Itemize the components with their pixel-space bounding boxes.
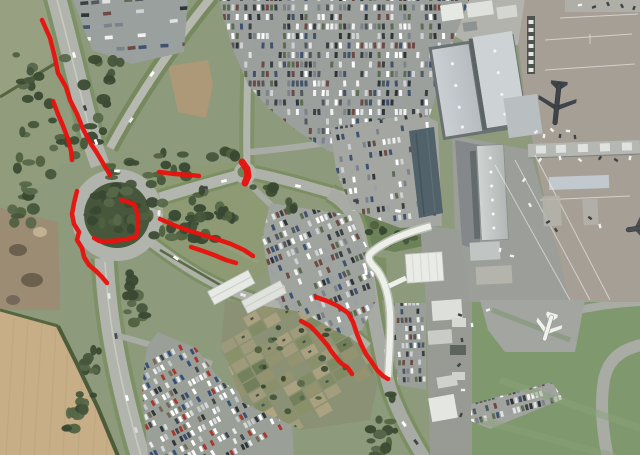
parked-car: [392, 138, 395, 144]
terminal-pier: [470, 144, 509, 241]
parked-car: [382, 61, 385, 67]
dirt-mound: [9, 244, 27, 256]
parked-car: [244, 71, 247, 77]
parked-car: [244, 23, 247, 29]
parked-car: [418, 360, 421, 365]
parked-car: [257, 14, 260, 20]
parked-car: [399, 90, 402, 96]
parked-car: [425, 14, 428, 20]
parked-car: [399, 4, 402, 10]
parked-car: [347, 109, 350, 115]
parked-car: [274, 4, 277, 10]
parked-car: [360, 99, 363, 105]
parked-car: [180, 6, 188, 10]
parked-car: [390, 71, 393, 77]
tree: [76, 391, 84, 398]
tree: [194, 212, 206, 223]
parked-car: [304, 4, 307, 10]
parked-car: [249, 23, 252, 29]
parked-car: [403, 52, 406, 58]
south-building: [428, 329, 453, 345]
parked-car: [248, 42, 251, 48]
parked-car: [313, 61, 316, 67]
parked-car: [261, 61, 264, 67]
parked-car: [347, 52, 350, 58]
tree: [318, 355, 326, 362]
parked-car: [403, 23, 406, 29]
tree: [165, 233, 179, 241]
parked-car: [408, 23, 411, 29]
parked-car: [365, 90, 368, 96]
tree: [366, 438, 375, 443]
parked-car: [429, 14, 432, 20]
parked-car: [369, 4, 372, 10]
parked-car: [386, 52, 389, 58]
tree: [99, 127, 107, 135]
parked-car: [365, 99, 368, 105]
parked-car: [386, 90, 389, 96]
parked-car: [395, 90, 398, 96]
parked-car: [352, 177, 355, 183]
parked-car: [399, 14, 402, 20]
parked-car: [347, 42, 350, 48]
parked-car: [231, 0, 234, 1]
parked-car: [339, 99, 342, 105]
parked-car: [261, 71, 264, 77]
parked-car: [300, 90, 303, 96]
parked-car: [339, 14, 342, 20]
parked-car: [248, 14, 251, 20]
tree: [125, 160, 136, 166]
parked-car: [309, 61, 312, 67]
parked-car: [378, 33, 381, 39]
tree: [375, 415, 382, 423]
parked-car: [401, 326, 404, 331]
parked-car: [373, 0, 376, 1]
dirt-mound: [21, 273, 43, 287]
parked-car: [283, 61, 286, 67]
parked-car: [352, 118, 355, 124]
parked-car: [409, 343, 412, 348]
tree: [365, 229, 373, 235]
parked-car: [287, 14, 290, 20]
parked-car: [408, 14, 411, 20]
parked-car: [403, 80, 406, 86]
parked-car: [390, 4, 393, 10]
parked-car: [236, 14, 239, 20]
top-right-road: [565, 0, 640, 12]
parked-car: [322, 14, 325, 20]
tree: [216, 212, 223, 220]
parked-car: [369, 23, 372, 29]
parked-car: [287, 80, 290, 86]
parked-car: [379, 151, 382, 157]
parked-car: [382, 80, 385, 86]
tree: [230, 150, 240, 161]
parked-car: [406, 368, 409, 373]
parked-car: [405, 326, 408, 331]
parked-car: [382, 23, 385, 29]
parked-car: [407, 377, 410, 382]
parked-car: [405, 334, 408, 339]
tree: [26, 217, 37, 228]
parked-car: [287, 4, 290, 10]
tree: [267, 182, 279, 192]
parked-car: [421, 99, 424, 105]
parked-car: [386, 80, 389, 86]
parked-car: [416, 0, 419, 1]
pier-south-block: [470, 241, 501, 261]
parked-car: [343, 23, 346, 29]
car-park-east-of-spine-road: [392, 300, 426, 390]
parked-car: [395, 159, 398, 165]
tree: [36, 156, 46, 167]
tree: [169, 210, 182, 221]
parked-car: [392, 171, 395, 177]
parked-car: [374, 185, 377, 191]
parked-car: [292, 52, 295, 58]
parked-car: [369, 109, 372, 115]
tree: [48, 118, 57, 124]
parked-car: [231, 23, 234, 29]
parked-car: [395, 52, 398, 58]
parked-car: [283, 0, 286, 1]
parked-car: [365, 4, 368, 10]
parked-car: [279, 52, 282, 58]
parked-car: [253, 80, 256, 86]
parked-car: [417, 334, 420, 339]
parked-car: [399, 109, 402, 115]
tree: [284, 408, 291, 414]
parked-car: [304, 71, 307, 77]
parked-car: [421, 325, 424, 330]
parked-car: [364, 52, 367, 58]
parked-car: [433, 23, 436, 29]
parked-car: [261, 42, 264, 48]
parked-car: [420, 308, 423, 313]
parked-car: [378, 61, 381, 67]
parked-car: [296, 52, 299, 58]
parked-car: [326, 137, 329, 143]
parked-car: [416, 309, 419, 314]
tree: [136, 303, 147, 313]
parked-car: [408, 90, 411, 96]
parked-car: [410, 351, 413, 356]
parked-car: [279, 33, 282, 39]
tree: [92, 206, 101, 214]
parked-car: [417, 317, 420, 322]
parked-car: [410, 368, 413, 373]
parked-car: [425, 61, 428, 67]
parked-car: [117, 47, 125, 51]
parked-car: [317, 71, 320, 77]
parked-car: [409, 326, 412, 331]
parked-car: [421, 33, 424, 39]
road-vehicle: [157, 210, 160, 216]
parked-car: [399, 42, 402, 48]
parked-car: [343, 71, 346, 77]
parked-car: [138, 45, 146, 49]
parked-car: [425, 122, 428, 128]
parked-car: [369, 0, 372, 1]
parked-car: [377, 71, 380, 77]
parked-car: [403, 214, 406, 220]
parked-car: [304, 14, 307, 20]
tree: [107, 55, 118, 67]
tree: [380, 442, 391, 454]
parked-car: [429, 71, 432, 77]
parked-car: [425, 4, 428, 10]
parked-car: [395, 71, 398, 77]
parked-car: [326, 42, 329, 48]
parked-car: [414, 343, 417, 348]
tree: [315, 396, 321, 399]
parked-car: [330, 0, 333, 1]
parked-car: [403, 377, 406, 382]
tree: [61, 425, 72, 432]
parked-car: [317, 128, 320, 134]
tree: [289, 204, 297, 214]
parked-car: [421, 4, 424, 10]
parked-car: [429, 33, 432, 39]
parked-car: [395, 80, 398, 86]
parked-car: [257, 4, 260, 10]
parked-car: [300, 71, 303, 77]
parked-car: [373, 23, 376, 29]
parked-car: [304, 52, 307, 58]
parked-car: [419, 377, 422, 382]
tree: [90, 345, 97, 355]
tree: [379, 227, 387, 234]
tree: [153, 153, 163, 158]
tree: [104, 198, 115, 207]
tree: [206, 152, 219, 162]
parked-car: [300, 33, 303, 39]
parked-car: [360, 71, 363, 77]
small-building: [452, 318, 466, 327]
parked-car: [403, 14, 406, 20]
parked-car: [309, 128, 312, 134]
parked-car: [160, 44, 168, 48]
parked-car: [398, 352, 401, 357]
parked-car: [223, 0, 226, 1]
parked-car: [283, 4, 286, 10]
parked-car: [382, 4, 385, 10]
parked-car: [409, 317, 412, 322]
parked-car: [398, 360, 401, 365]
parked-car: [377, 52, 380, 58]
tree: [374, 430, 386, 439]
parked-car: [422, 351, 425, 356]
stand-pad: [582, 199, 598, 226]
parked-car: [227, 14, 230, 20]
parked-car: [266, 99, 269, 105]
parked-car: [343, 118, 346, 124]
parked-car: [365, 197, 368, 203]
parked-car: [352, 61, 355, 67]
tree: [263, 365, 267, 370]
parked-car: [421, 61, 424, 67]
parked-car: [390, 61, 393, 67]
parked-car: [406, 351, 409, 356]
parked-car: [244, 4, 247, 10]
parked-car: [423, 376, 426, 381]
parked-car: [253, 0, 256, 1]
parked-car: [304, 0, 307, 1]
parked-car: [386, 14, 389, 20]
pale-roof-band: [549, 175, 609, 190]
parked-car: [446, 0, 449, 1]
parked-car: [266, 4, 269, 10]
parked-car: [339, 71, 342, 77]
parked-car: [270, 90, 273, 96]
parked-car: [249, 33, 252, 39]
parked-car: [408, 33, 411, 39]
parked-car: [347, 90, 350, 96]
parked-car: [403, 4, 406, 10]
parked-car: [399, 377, 402, 382]
parked-car: [425, 0, 428, 1]
parked-car: [339, 4, 342, 10]
parked-car: [339, 0, 342, 1]
parked-car: [326, 128, 329, 134]
parked-car: [377, 80, 380, 86]
parked-car: [287, 0, 290, 1]
parked-car: [80, 1, 88, 5]
parked-car: [270, 61, 273, 67]
tree: [13, 163, 22, 174]
tree: [59, 54, 71, 62]
parked-car: [296, 80, 299, 86]
parked-car: [386, 71, 389, 77]
parked-car: [360, 109, 363, 115]
parked-car: [356, 42, 359, 48]
parked-car: [378, 42, 381, 48]
parked-car: [373, 42, 376, 48]
parked-car: [287, 33, 290, 39]
parked-car: [261, 0, 264, 1]
parked-car: [397, 335, 400, 340]
parked-car: [425, 109, 428, 115]
tree: [22, 159, 35, 166]
parked-car: [399, 33, 402, 39]
parked-car: [231, 33, 234, 39]
parked-car: [300, 61, 303, 67]
parked-car: [403, 71, 406, 77]
parked-car: [326, 99, 329, 105]
parked-car: [300, 52, 303, 58]
tree: [78, 404, 88, 415]
parked-car: [335, 14, 338, 20]
parked-car: [317, 4, 320, 10]
parked-car: [356, 90, 359, 96]
tree: [370, 221, 379, 230]
parked-car: [257, 0, 260, 1]
parked-car: [283, 33, 286, 39]
parked-car: [399, 0, 402, 1]
parked-car: [291, 71, 294, 77]
tree: [45, 169, 56, 179]
parked-car: [451, 33, 454, 39]
parked-car: [257, 90, 260, 96]
parked-car: [339, 33, 342, 39]
parked-car: [227, 0, 230, 1]
parked-car: [300, 80, 303, 86]
parked-car: [403, 0, 406, 1]
tree: [276, 325, 281, 330]
tree: [98, 190, 107, 199]
parked-car: [304, 80, 307, 86]
parked-car: [378, 90, 381, 96]
parked-car: [330, 61, 333, 67]
parked-car: [296, 33, 299, 39]
parked-car: [261, 4, 264, 10]
parked-car: [421, 71, 424, 77]
tree: [157, 199, 169, 208]
parked-car: [433, 4, 436, 10]
parked-car: [360, 23, 363, 29]
tree: [93, 113, 104, 123]
parked-car: [369, 90, 372, 96]
parked-car: [429, 4, 432, 10]
tree: [24, 188, 38, 195]
parked-car: [304, 33, 307, 39]
parked-car: [438, 14, 441, 20]
tree: [179, 162, 191, 172]
parked-car: [330, 42, 333, 48]
parked-car: [313, 23, 316, 29]
parked-car: [292, 90, 295, 96]
parked-car: [322, 23, 325, 29]
parked-car: [317, 0, 320, 1]
parked-car: [412, 4, 415, 10]
tree: [81, 358, 92, 365]
parked-car: [317, 42, 320, 48]
parked-car: [296, 23, 299, 29]
parked-car: [373, 90, 376, 96]
parked-car: [406, 360, 409, 365]
parked-car: [343, 0, 346, 1]
parked-car: [304, 42, 307, 48]
parked-car: [261, 80, 264, 86]
tree: [322, 333, 330, 337]
parked-car: [418, 351, 421, 356]
parked-car: [410, 360, 413, 365]
parked-car: [352, 109, 355, 115]
parked-car: [352, 23, 355, 29]
tree: [385, 391, 397, 397]
parked-car: [369, 42, 372, 48]
parked-car: [421, 317, 424, 322]
parked-car: [227, 4, 230, 10]
parked-car: [313, 71, 316, 77]
tree: [148, 231, 159, 239]
parked-car: [244, 14, 247, 20]
parked-car: [369, 61, 372, 67]
tree: [128, 318, 140, 328]
small-building: [452, 372, 465, 380]
parked-car: [412, 42, 415, 48]
parked-car: [257, 33, 260, 39]
parked-car: [283, 52, 286, 58]
parked-car: [335, 23, 338, 29]
tree: [146, 180, 157, 188]
parked-car: [399, 23, 402, 29]
parked-car: [339, 118, 342, 124]
parked-car: [300, 99, 303, 105]
parked-car: [93, 24, 101, 28]
parked-car: [416, 52, 419, 58]
